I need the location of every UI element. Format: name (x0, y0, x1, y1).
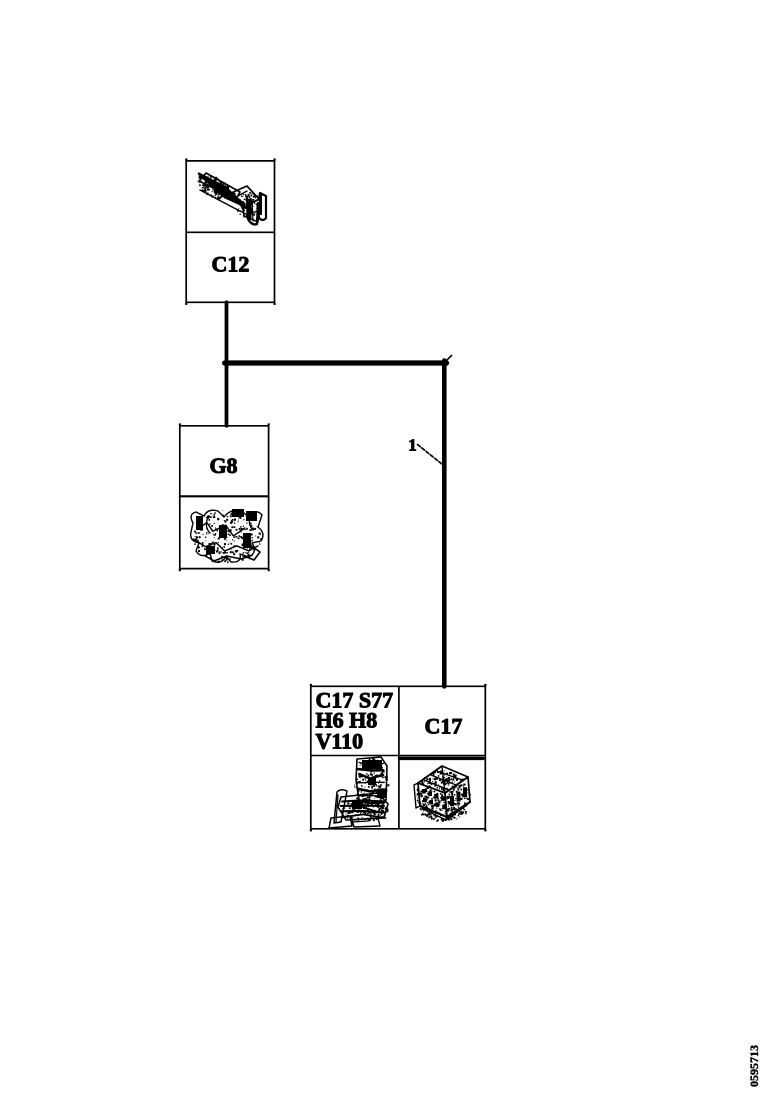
svg-text:C12: C12 (212, 252, 250, 277)
svg-text:G8: G8 (209, 453, 237, 478)
svg-text:1: 1 (408, 436, 417, 455)
svg-text:V110: V110 (316, 729, 364, 754)
svg-text:0595713: 0595713 (747, 1045, 761, 1087)
svg-text:C17: C17 (425, 714, 463, 739)
